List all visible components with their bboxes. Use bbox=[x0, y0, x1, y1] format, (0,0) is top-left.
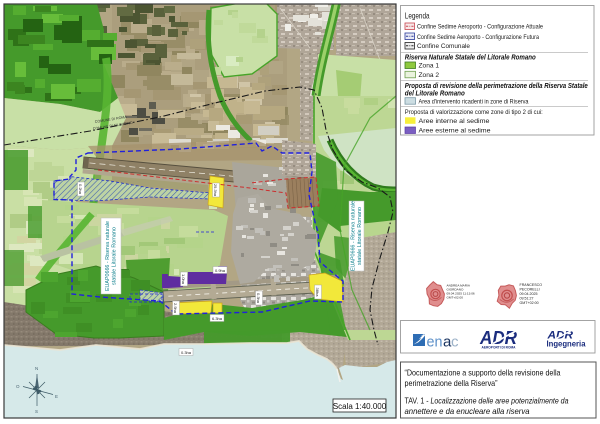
svg-text:EUAP0666 - Riserva naturale: EUAP0666 - Riserva naturale bbox=[350, 201, 356, 271]
svg-text:Confine Comunale: Confine Comunale bbox=[417, 43, 470, 50]
svg-text:en: en bbox=[427, 334, 443, 351]
svg-text:c: c bbox=[451, 334, 459, 351]
svg-text:09.04.2025: 09.04.2025 bbox=[520, 292, 538, 296]
svg-text:Zona 2: Zona 2 bbox=[419, 72, 440, 79]
svg-text:AEROPORTI DI ROMA: AEROPORTI DI ROMA bbox=[482, 345, 517, 349]
svg-text:Riserva Naturale Statale del L: Riserva Naturale Statale del Litorale Ro… bbox=[405, 54, 536, 61]
svg-text:GMT+02:00: GMT+02:00 bbox=[447, 296, 464, 300]
svg-text:Confine Sedime Aeroporto - Con: Confine Sedime Aeroporto - Configurazion… bbox=[417, 24, 543, 31]
svg-text:0.3ha: 0.3ha bbox=[181, 350, 192, 355]
svg-text:Aree interne al sedime: Aree interne al sedime bbox=[419, 118, 490, 125]
svg-text:del Litorale Romano: del Litorale Romano bbox=[405, 90, 465, 97]
svg-text:statale Litorale Romano: statale Litorale Romano bbox=[357, 207, 363, 265]
svg-text:Aree esterne al sedime: Aree esterne al sedime bbox=[419, 128, 491, 135]
svg-text:O: O bbox=[16, 384, 20, 389]
svg-text:0.9ha: 0.9ha bbox=[215, 268, 226, 273]
svg-text:1.0ha: 1.0ha bbox=[181, 274, 186, 285]
svg-text:Legenda: Legenda bbox=[405, 11, 430, 21]
svg-text:Area d'intervento ricadenti in: Area d'intervento ricadenti in zone di R… bbox=[419, 98, 529, 105]
svg-text:GMT+02:00: GMT+02:00 bbox=[520, 301, 539, 305]
svg-text:Scala 1:40.000: Scala 1:40.000 bbox=[333, 402, 387, 411]
svg-text:Proposta di valorizzazione com: Proposta di valorizzazione come zone di … bbox=[405, 109, 543, 116]
svg-text:annettere e da enucleare alla: annettere e da enucleare alla riserva bbox=[405, 407, 530, 416]
svg-text:N: N bbox=[35, 366, 38, 371]
svg-text:PECORELLI: PECORELLI bbox=[520, 288, 540, 292]
svg-text:38ha: 38ha bbox=[315, 288, 320, 298]
svg-text:Ingegneria: Ingegneria bbox=[547, 338, 586, 348]
svg-text:statale Litorale Romano: statale Litorale Romano bbox=[112, 227, 118, 285]
svg-text:EUAP0666 - Riserva naturale: EUAP0666 - Riserva naturale bbox=[105, 221, 111, 291]
svg-text:E: E bbox=[55, 394, 58, 399]
svg-text:Proposta di revisione della pe: Proposta di revisione della perimetrazio… bbox=[405, 83, 588, 90]
svg-text:S: S bbox=[35, 409, 38, 414]
svg-text:FRANCESCO: FRANCESCO bbox=[520, 283, 543, 287]
svg-text:0.2ha: 0.2ha bbox=[78, 184, 83, 195]
svg-text:TAV. 1 - Localizzazione delle: TAV. 1 - Localizzazione delle aree poten… bbox=[405, 397, 569, 406]
svg-text:6.3ha: 6.3ha bbox=[212, 316, 223, 321]
svg-text:perimetrazione della Riserva”: perimetrazione della Riserva” bbox=[405, 379, 498, 388]
svg-text:09:51:27: 09:51:27 bbox=[520, 297, 534, 301]
svg-text:29.3ha: 29.3ha bbox=[213, 184, 218, 197]
svg-text:Zona 1: Zona 1 bbox=[419, 63, 440, 70]
svg-text:“Documentazione a supporto del: “Documentazione a supporto della revisio… bbox=[405, 369, 561, 378]
svg-text:Confine Sedime Aeroporto - Con: Confine Sedime Aeroporto - Configurazion… bbox=[417, 34, 539, 41]
svg-text:0.3ha: 0.3ha bbox=[256, 293, 261, 304]
svg-text:2.9ha: 2.9ha bbox=[173, 303, 178, 314]
